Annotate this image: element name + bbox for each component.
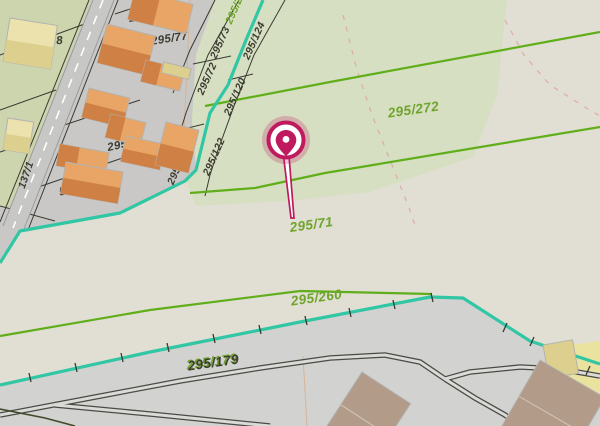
cadastral-map[interactable]: 120/11 23 8 295/77 295/73 295/124 295/72… xyxy=(0,0,600,426)
map-viewport[interactable]: 120/11 23 8 295/77 295/73 295/124 295/72… xyxy=(0,0,600,426)
